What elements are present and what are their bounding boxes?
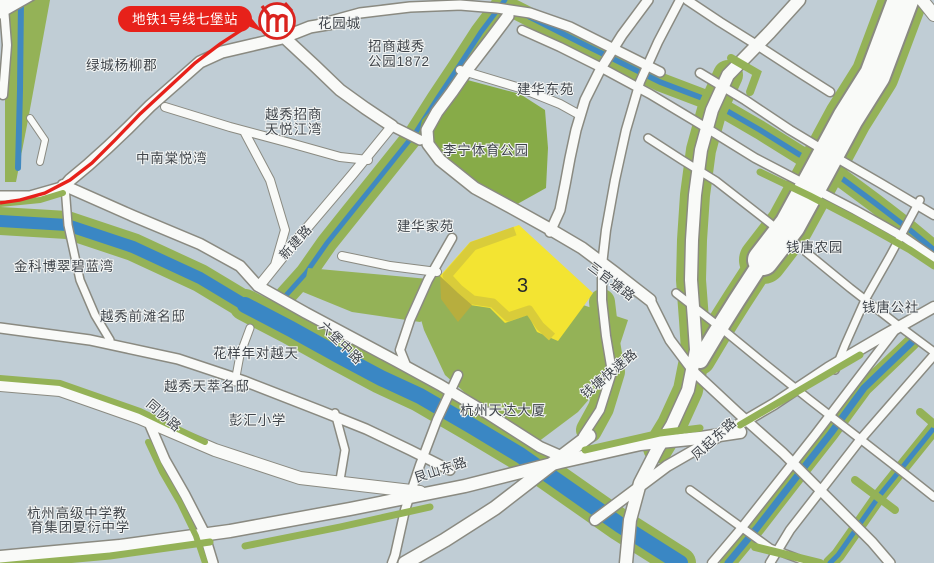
svg-text:建华家苑: 建华家苑: [397, 218, 454, 234]
svg-text:花样年对越天: 花样年对越天: [213, 346, 299, 361]
svg-text:钱唐公社: 钱唐公社: [862, 299, 919, 315]
svg-text:地铁1号线七堡站: 地铁1号线七堡站: [132, 12, 238, 27]
svg-text:建华东苑: 建华东苑: [517, 82, 574, 97]
svg-text:钱唐农园: 钱唐农园: [786, 239, 843, 255]
svg-text:天悦江湾: 天悦江湾: [265, 121, 322, 137]
svg-text:越秀天萃名邸: 越秀天萃名邸: [164, 379, 250, 394]
svg-text:绿城杨柳郡: 绿城杨柳郡: [86, 58, 158, 73]
svg-text:杭州高级中学教: 杭州高级中学教: [27, 505, 127, 521]
svg-text:李宁体育公园: 李宁体育公园: [443, 142, 529, 158]
svg-text:花园城: 花园城: [318, 16, 361, 31]
svg-text:育集团夏衍中学: 育集团夏衍中学: [30, 520, 130, 535]
svg-text:金科博翠碧蓝湾: 金科博翠碧蓝湾: [14, 258, 114, 274]
svg-text:越秀招商: 越秀招商: [265, 107, 322, 122]
svg-text:中南棠悦湾: 中南棠悦湾: [136, 150, 208, 166]
svg-text:招商越秀: 招商越秀: [368, 39, 425, 54]
svg-text:3: 3: [517, 275, 529, 297]
svg-text:公园1872: 公园1872: [368, 54, 430, 69]
svg-text:彭汇小学: 彭汇小学: [229, 413, 286, 428]
svg-text:越秀前滩名邸: 越秀前滩名邸: [100, 308, 186, 324]
svg-text:杭州天达大厦: 杭州天达大厦: [460, 403, 546, 418]
